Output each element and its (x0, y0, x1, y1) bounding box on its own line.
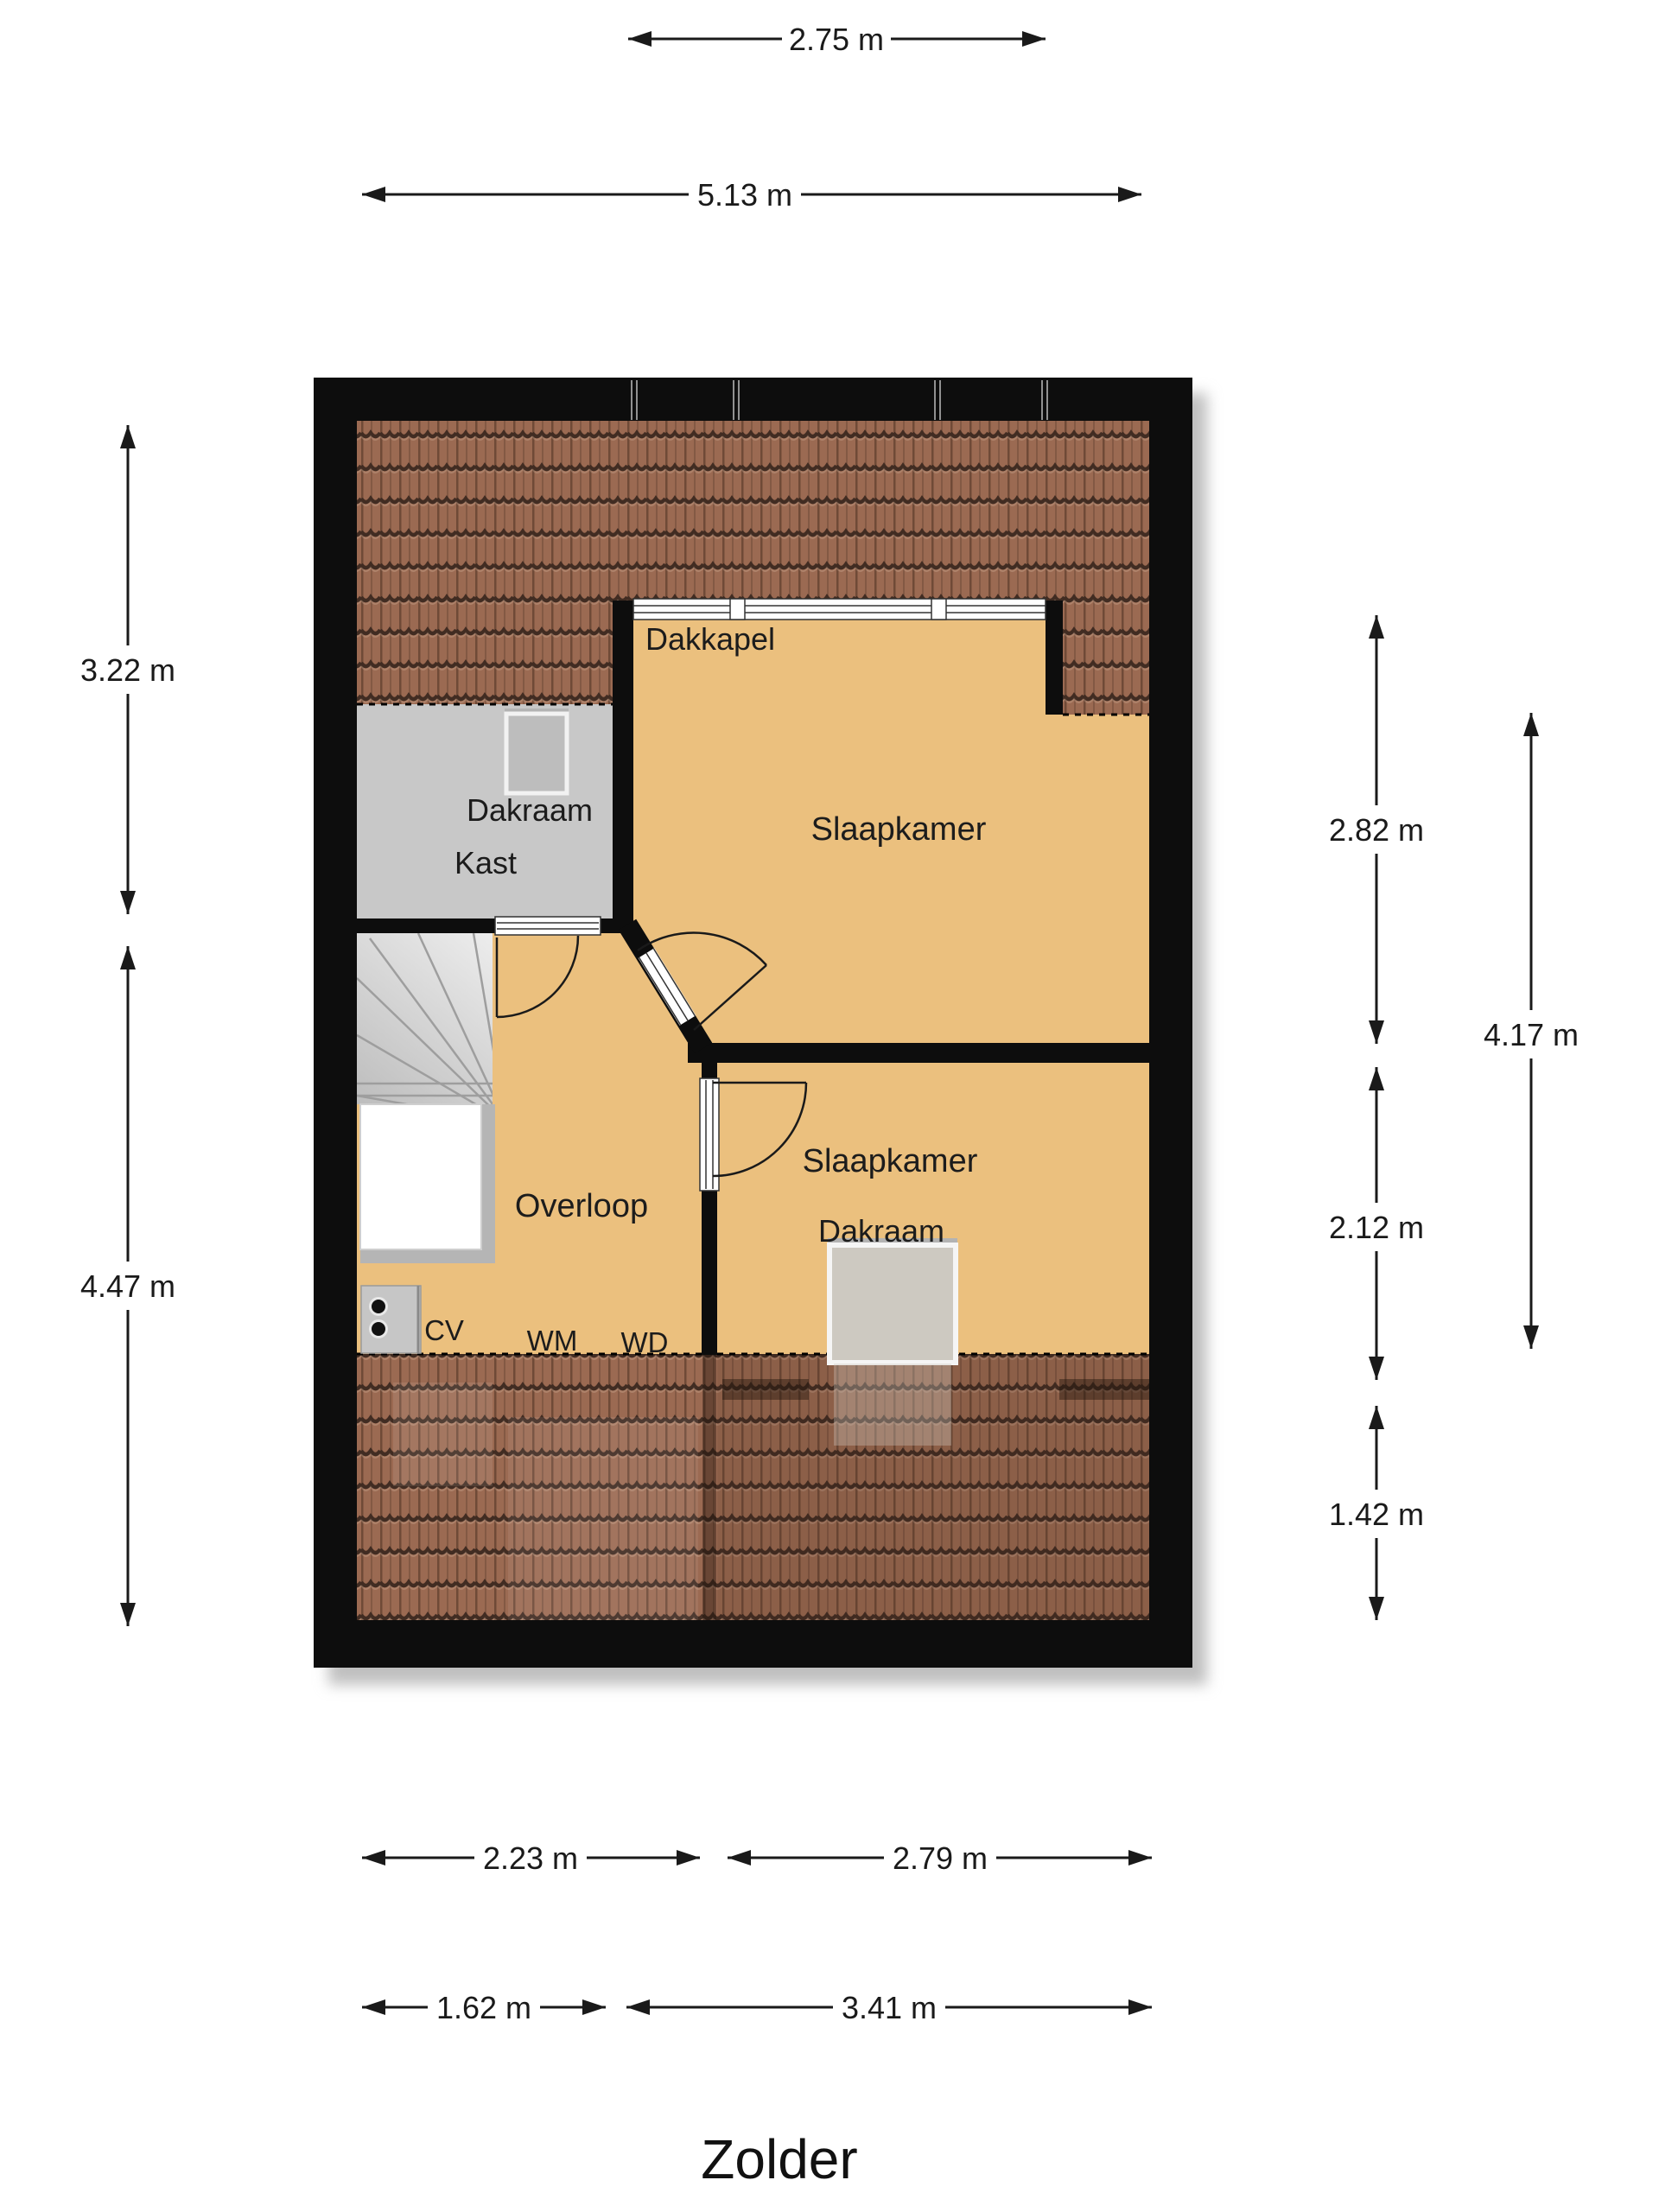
label-slaapkamer-top: Slaapkamer (811, 811, 987, 848)
stair-railing-bottom (360, 1249, 495, 1263)
label-wm: WM (527, 1325, 578, 1357)
dim-label-447: 4.47 m (80, 1268, 175, 1304)
dim-417: 4.17 m (1484, 713, 1579, 1349)
roof-light-patch-2 (393, 1382, 493, 1486)
stairwell-void (360, 1104, 481, 1249)
wall-outer-top (314, 378, 1192, 421)
label-slaapkamer-bottom: Slaapkamer (803, 1143, 978, 1179)
dim-142: 1.42 m (1329, 1406, 1424, 1620)
skylight-kast (505, 709, 569, 793)
window-head-shadow-right (1059, 1379, 1151, 1400)
dim-label-341: 3.41 m (842, 1990, 937, 2025)
page-title: Zolder (701, 2128, 857, 2190)
wall-kast-bedroom (613, 601, 633, 918)
dim-341: 3.41 m (626, 1990, 1152, 2025)
dim-label-142: 1.42 m (1329, 1497, 1424, 1532)
dim-162: 1.62 m (362, 1990, 606, 2025)
wall-overloop-bedroom-upper (702, 1048, 717, 1081)
dim-513: 5.13 m (362, 177, 1141, 213)
floorplan-page: Dakkapel Dakraam Kast Slaapkamer Overloo… (0, 0, 1659, 2212)
dim-279: 2.79 m (728, 1840, 1152, 1876)
dim-212: 2.12 m (1329, 1067, 1424, 1380)
stair-railing-right (481, 1104, 495, 1263)
dim-223: 2.23 m (362, 1840, 700, 1876)
kast-door-opening (495, 917, 601, 935)
dim-label-513: 5.13 m (697, 177, 792, 213)
dormer-window-mullion (730, 599, 745, 620)
dim-label-162: 1.62 m (436, 1990, 531, 2025)
window-head-shadow-left (722, 1379, 809, 1400)
label-dakkapel: Dakkapel (645, 621, 775, 657)
label-wd: WD (621, 1326, 669, 1358)
wall-outer-bottom (314, 1620, 1192, 1668)
wall-outer-left (314, 378, 357, 1668)
dim-label-417: 4.17 m (1484, 1017, 1579, 1052)
label-dakraam-bottom: Dakraam (818, 1213, 944, 1249)
skylight-bedroom2 (828, 1238, 957, 1446)
dim-447: 4.47 m (80, 946, 175, 1626)
bedroom2-door-opening (700, 1078, 719, 1191)
wall-outer-right (1149, 378, 1192, 1668)
label-cv: CV (424, 1314, 464, 1346)
wall-overloop-bedroom-lower (702, 1191, 717, 1355)
floorplan-svg: Dakkapel Dakraam Kast Slaapkamer Overloo… (0, 0, 1659, 2212)
dim-label-223: 2.23 m (483, 1840, 578, 1876)
label-dakraam-top: Dakraam (467, 792, 593, 828)
dim-label-322: 3.22 m (80, 652, 175, 688)
label-kast: Kast (454, 845, 517, 880)
dim-label-212: 2.12 m (1329, 1210, 1424, 1245)
dormer-window (633, 599, 1046, 620)
dim-label-279: 2.79 m (893, 1840, 988, 1876)
cv-boiler (361, 1286, 421, 1353)
roof-light-patch (508, 1417, 698, 1620)
dim-275: 2.75 m (628, 22, 1046, 57)
dim-322: 3.22 m (80, 425, 175, 914)
staircase (357, 933, 505, 1263)
wall-dormer-stub (1046, 601, 1063, 715)
label-overloop: Overloop (515, 1188, 648, 1224)
dim-label-275: 2.75 m (789, 22, 884, 57)
dim-282: 2.82 m (1329, 615, 1424, 1044)
stair-steps (357, 933, 493, 1104)
wall-bedroom-divider (688, 1043, 1149, 1063)
dormer-window-mullion (931, 599, 946, 620)
skylight-ghost (834, 1363, 951, 1446)
dim-label-282: 2.82 m (1329, 812, 1424, 848)
